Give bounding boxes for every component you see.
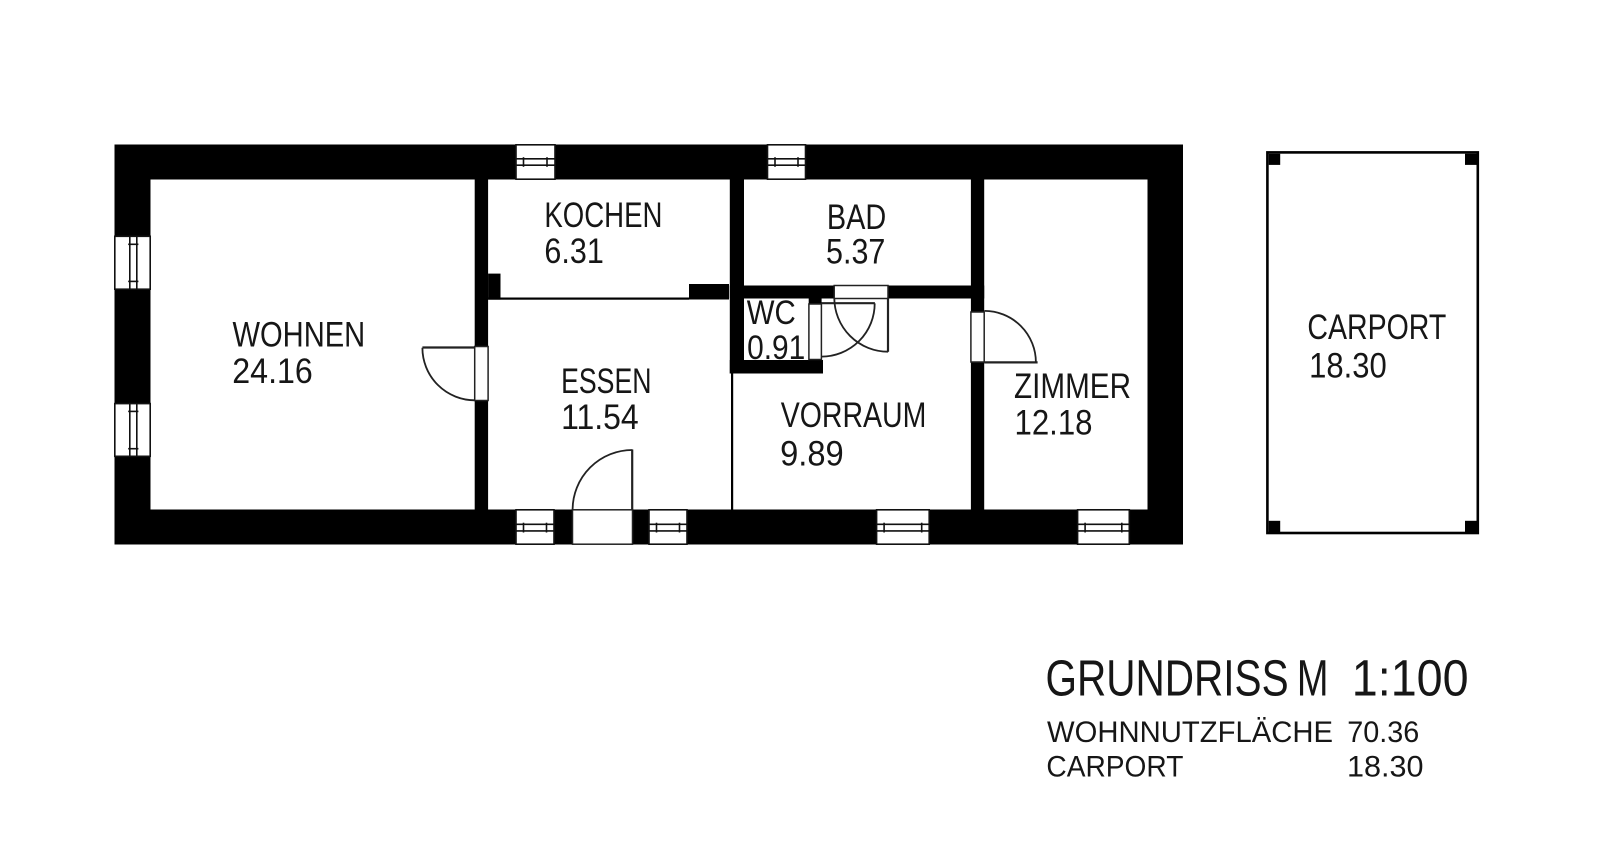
svg-text:CARPORT: CARPORT (1307, 307, 1446, 347)
svg-text:ESSEN: ESSEN (561, 361, 651, 401)
svg-text:24.16: 24.16 (232, 351, 312, 391)
svg-text:18.30: 18.30 (1309, 346, 1387, 386)
svg-text:KOCHEN: KOCHEN (544, 195, 662, 235)
svg-text:5.37: 5.37 (826, 232, 885, 272)
svg-text:1:100: 1:100 (1352, 650, 1469, 707)
svg-text:18.30: 18.30 (1347, 751, 1424, 784)
svg-text:0.91: 0.91 (747, 329, 805, 367)
svg-text:WOHNEN: WOHNEN (233, 314, 366, 354)
svg-text:12.18: 12.18 (1015, 403, 1093, 443)
svg-text:GRUNDRISS: GRUNDRISS (1046, 650, 1289, 707)
svg-text:WC: WC (747, 294, 796, 332)
svg-text:VORRAUM: VORRAUM (781, 395, 927, 435)
svg-text:CARPORT: CARPORT (1046, 751, 1183, 784)
svg-text:M: M (1297, 650, 1329, 707)
svg-text:6.31: 6.31 (544, 231, 603, 271)
svg-text:ZIMMER: ZIMMER (1014, 366, 1131, 406)
svg-text:11.54: 11.54 (561, 397, 639, 437)
svg-text:9.89: 9.89 (780, 433, 844, 473)
svg-text:70.36: 70.36 (1347, 716, 1419, 749)
svg-text:WOHNNUTZFLÄCHE: WOHNNUTZFLÄCHE (1047, 716, 1333, 749)
